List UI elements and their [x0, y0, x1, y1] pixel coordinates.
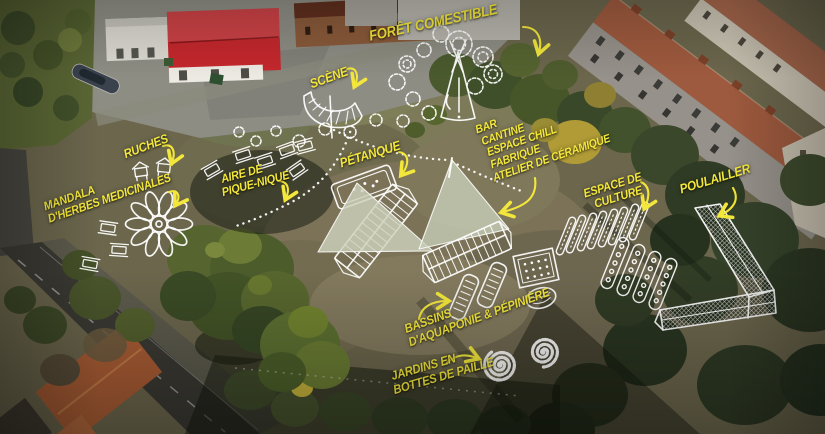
annotated-aerial-site-plan: FORÊT COMESTIBLE SCÈNE RUCHES MANDALA D'… — [0, 0, 825, 434]
